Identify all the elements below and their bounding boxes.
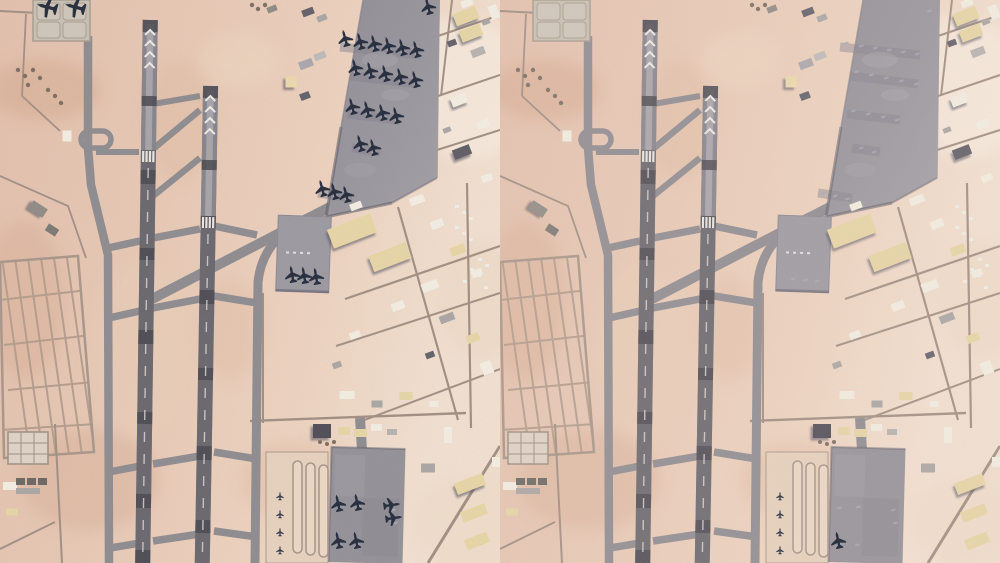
satellite-view-right <box>500 0 1000 563</box>
satellite-view-left <box>0 0 500 563</box>
satellite-comparison <box>0 0 1000 563</box>
satellite-image-right <box>500 0 1000 563</box>
satellite-image-left <box>0 0 500 563</box>
exposure-tint <box>500 0 1000 563</box>
